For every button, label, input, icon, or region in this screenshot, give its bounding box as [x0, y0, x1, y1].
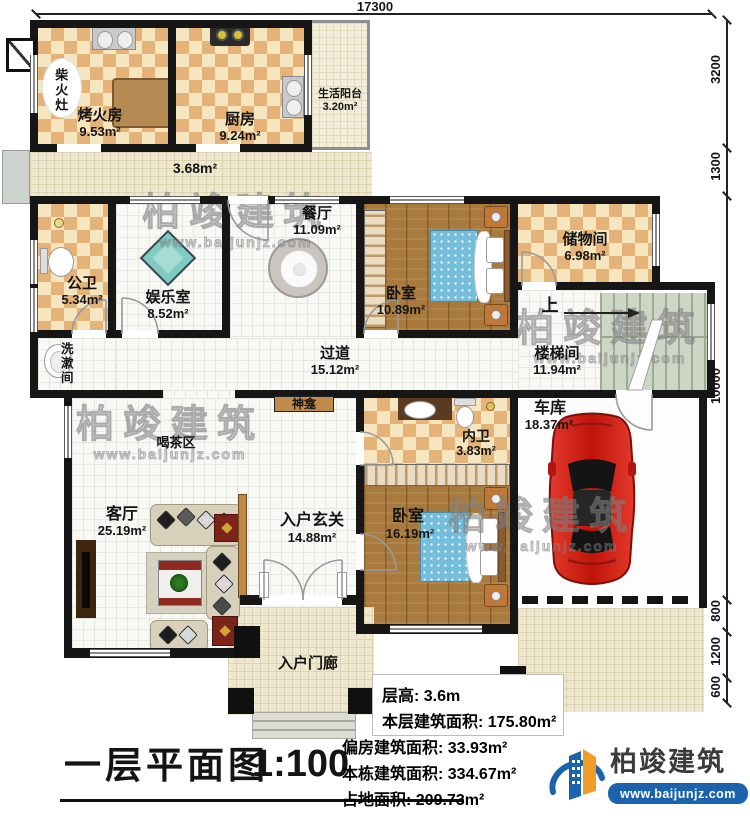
label-fire-room-area: 9.53m²	[60, 125, 140, 139]
info-building-area: 本栋建筑面积: 334.67m²	[342, 760, 516, 784]
label-corridor-area: 3.68m²	[155, 161, 235, 176]
label-hallway-area: 15.12m²	[295, 363, 375, 377]
label-ensuite-bath: 内卫	[448, 429, 504, 444]
dimension-right-3200: 3200	[708, 55, 723, 84]
info-floor-height: 层高: 3.6m	[382, 682, 460, 706]
logo-site-bar: www.baijunjz.com	[608, 783, 748, 804]
label-dining-area: 11.09m²	[282, 223, 352, 237]
label-living-room: 客厅	[92, 506, 152, 524]
label-stairwell: 楼梯间	[512, 346, 602, 363]
label-storage-area: 6.98m²	[545, 249, 625, 263]
label-garage-area: 18.37m²	[518, 418, 580, 432]
label-kitchen: 厨房	[205, 112, 275, 129]
label-bedroom1: 卧室	[366, 286, 436, 303]
dimension-right-1200: 1200	[708, 637, 723, 666]
label-dining: 餐厅	[282, 206, 352, 223]
label-public-bath-area: 5.34m²	[44, 293, 120, 307]
label-stairwell-area: 11.94m²	[512, 363, 602, 377]
dimension-right-600: 600	[708, 676, 723, 698]
label-washroom: 洗漱间	[58, 340, 72, 388]
label-hallway: 过道	[300, 346, 370, 363]
label-shrine: 神龛	[276, 398, 332, 411]
logo-brand: 柏竣建筑	[610, 748, 750, 778]
logo-icon	[545, 742, 605, 806]
dimension-top: 17300	[320, 0, 430, 14]
stair-break-line	[628, 320, 663, 390]
label-bedroom2: 卧室	[378, 508, 438, 526]
info-annex-area: 偏房建筑面积: 33.93m²	[342, 734, 507, 758]
info-land-area: 占地面积: 209.73m²	[342, 786, 484, 810]
info-floor-area: 本层建筑面积: 175.80m²	[382, 708, 556, 732]
label-garage: 车库	[524, 400, 576, 418]
floor-plan-page: 柏竣建筑 www.baijunjz.com 柏竣建筑 www.baijunjz.…	[0, 0, 750, 823]
label-balcony: 生活阳台	[308, 88, 372, 100]
label-ensuite-bath-area: 3.83m²	[444, 445, 508, 459]
label-storage: 储物间	[540, 232, 630, 249]
label-entrance-porch: 入户门廊	[258, 656, 358, 673]
page-scale: 1:100	[252, 744, 352, 786]
label-foyer: 入户玄关	[262, 512, 362, 530]
label-game-room-area: 8.52m²	[132, 307, 204, 321]
label-stairs-up: 上	[538, 297, 562, 316]
label-bedroom2-area: 16.19m²	[374, 527, 446, 541]
label-bedroom1-area: 10.89m²	[362, 303, 440, 317]
label-living-room-area: 25.19m²	[84, 524, 160, 538]
dimension-right-800: 800	[708, 600, 723, 622]
label-foyer-area: 14.88m²	[268, 531, 356, 545]
label-public-bath: 公卫	[52, 276, 112, 293]
label-kitchen-area: 9.24m²	[205, 129, 275, 143]
page-title: 一层平面图	[64, 746, 284, 787]
label-balcony-area: 3.20m²	[308, 101, 372, 113]
label-tea-area: 喝茶区	[146, 436, 206, 450]
stairs-up-arrow	[564, 308, 640, 318]
dimension-right-1300: 1300	[708, 152, 723, 181]
label-fire-room: 烤火房	[60, 108, 140, 125]
logo-site: www.baijunjz.com	[620, 787, 736, 801]
dimension-right-10000: 10000	[708, 368, 723, 404]
label-game-room: 娱乐室	[130, 290, 206, 307]
